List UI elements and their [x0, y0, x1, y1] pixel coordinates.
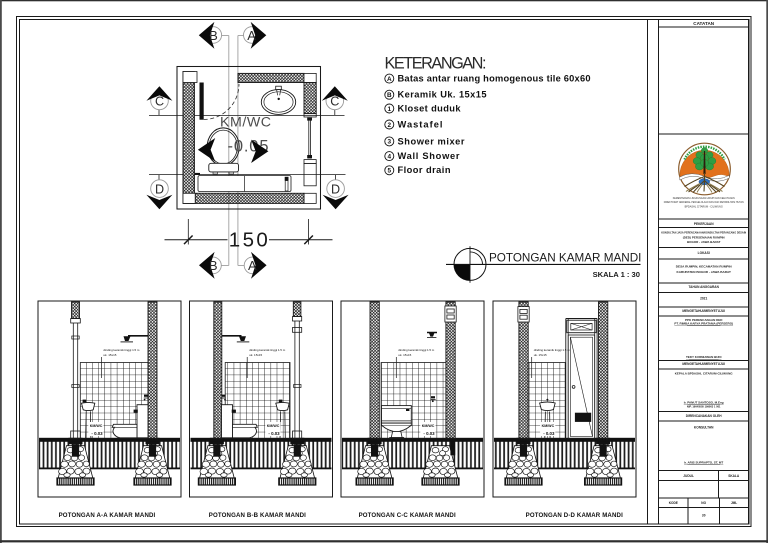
svg-text:5: 5	[388, 168, 392, 175]
svg-text:KONSULTAN JASA PERENCANAAN/KON: KONSULTAN JASA PERENCANAAN/KONSULTAN PER…	[661, 231, 746, 235]
svg-text:PT. RIMBA KARYA PRATAMA (PERSE: PT. RIMBA KARYA PRATAMA (PERSERO)	[674, 321, 733, 325]
svg-text:NIP. 19640505 199003 1 001: NIP. 19640505 199003 1 001	[687, 405, 721, 409]
svg-text:B: B	[209, 258, 218, 273]
svg-text:MENGETAHUI/MENYETUJUI: MENGETAHUI/MENYETUJUI	[682, 362, 725, 366]
svg-text:3: 3	[388, 139, 392, 146]
svg-text:150: 150	[229, 229, 268, 252]
svg-text:Ir. ARIS SUPRAPTO, ST, MT: Ir. ARIS SUPRAPTO, ST, MT	[684, 461, 723, 465]
svg-text:SKALA 1 : 30: SKALA 1 : 30	[593, 270, 640, 279]
svg-text:POTONGAN B-B KAMAR MANDI: POTONGAN B-B KAMAR MANDI	[209, 512, 306, 519]
svg-text:dinding keramik tinggi 1.5 m: dinding keramik tinggi 1.5 m	[398, 348, 435, 352]
svg-text:KEPALA BPDASHL CITARUM-CILIWUN: KEPALA BPDASHL CITARUM-CILIWUNG	[675, 372, 734, 376]
svg-text:1: 1	[388, 106, 392, 113]
svg-text:POTONGAN A-A KAMAR MANDI: POTONGAN A-A KAMAR MANDI	[59, 512, 156, 519]
svg-text:MENGETAHUI/MENYETUJUI: MENGETAHUI/MENYETUJUI	[682, 309, 725, 313]
svg-text:B: B	[387, 92, 392, 99]
svg-text:2021: 2021	[700, 297, 707, 301]
svg-text:uk. 15x15: uk. 15x15	[398, 353, 411, 357]
svg-text:DESA RUMPIN, KECAMATAN RUMPIN: DESA RUMPIN, KECAMATAN RUMPIN	[676, 265, 733, 269]
svg-text:D: D	[155, 182, 164, 196]
svg-text:A: A	[387, 76, 392, 83]
svg-text:KM/WC: KM/WC	[542, 424, 555, 428]
svg-text:- 0.03: - 0.03	[543, 431, 555, 436]
svg-text:Batas antar ruang homogenous t: Batas antar ruang homogenous tile 60x60	[398, 74, 591, 84]
svg-text:POTONGAN D-D KAMAR MANDI: POTONGAN D-D KAMAR MANDI	[526, 512, 623, 519]
svg-text:Keramik Uk. 15x15: Keramik Uk. 15x15	[398, 90, 487, 100]
svg-text:4: 4	[388, 153, 392, 160]
svg-text:TAHUN ANGGARAN: TAHUN ANGGARAN	[688, 285, 719, 289]
svg-text:BOGOR - JAWA BARAT: BOGOR - JAWA BARAT	[687, 240, 721, 244]
svg-text:TEDY KURNIAWAN BUDI: TEDY KURNIAWAN BUDI	[686, 355, 722, 359]
svg-text:A: A	[247, 28, 256, 43]
svg-text:KONSULTAN: KONSULTAN	[694, 426, 714, 430]
svg-text:Wall Shower: Wall Shower	[398, 151, 460, 161]
svg-text:Wastafel: Wastafel	[398, 119, 443, 129]
svg-text:dinding keramik tinggi 1.5 m: dinding keramik tinggi 1.5 m	[249, 348, 286, 352]
svg-text:Floor drain: Floor drain	[398, 165, 451, 175]
svg-text:JUDUL: JUDUL	[683, 474, 694, 478]
svg-text:- 0.03: - 0.03	[268, 431, 280, 436]
svg-text:KM/WC: KM/WC	[422, 424, 435, 428]
svg-text:30: 30	[702, 513, 706, 517]
svg-text:uk. 15x15: uk. 15x15	[249, 353, 262, 357]
svg-text:dinding keramik tinggi 1.5 m: dinding keramik tinggi 1.5 m	[103, 348, 139, 352]
svg-text:Shower mixer: Shower mixer	[398, 136, 465, 146]
svg-text:CATATAN: CATATAN	[693, 21, 715, 26]
svg-text:POTONGAN KAMAR MANDI: POTONGAN KAMAR MANDI	[489, 251, 641, 264]
svg-text:2: 2	[388, 122, 392, 129]
svg-text:KM/WC: KM/WC	[90, 424, 103, 428]
svg-text:Ir. PANUT SANTOSO, M.Eng: Ir. PANUT SANTOSO, M.Eng	[684, 401, 724, 405]
svg-text:PEKERJAAN: PEKERJAAN	[694, 222, 714, 226]
svg-text:DIRENCANAKAN OLEH: DIRENCANAKAN OLEH	[686, 414, 722, 418]
svg-text:KODE: KODE	[669, 501, 678, 505]
svg-text:KM/WC: KM/WC	[267, 424, 280, 428]
svg-text:DIREKTORAT JENDERAL PENGELOLAA: DIREKTORAT JENDERAL PENGELOLAAN DAS DAN …	[664, 201, 744, 204]
svg-text:dinding keramik tinggi 1.5 m: dinding keramik tinggi 1.5 m	[534, 348, 571, 352]
svg-text:KM/WC: KM/WC	[220, 115, 271, 131]
svg-text:BPDASHL CITARUM - CILIWUNG: BPDASHL CITARUM - CILIWUNG	[685, 205, 723, 208]
svg-text:D: D	[331, 182, 340, 196]
svg-text:B: B	[209, 28, 218, 43]
svg-text:SKALA: SKALA	[728, 474, 740, 478]
svg-text:JML: JML	[731, 501, 737, 505]
svg-text:uk. 15x15: uk. 15x15	[103, 353, 116, 357]
svg-text:(DED) PERSEMAIAN RUMPIN: (DED) PERSEMAIAN RUMPIN	[683, 235, 725, 239]
svg-text:- 0.03: - 0.03	[423, 431, 435, 436]
svg-text:C: C	[330, 95, 339, 109]
svg-text:- 0.03: - 0.03	[91, 431, 103, 436]
svg-text:NO: NO	[701, 501, 706, 505]
svg-text:C: C	[155, 95, 164, 109]
svg-text:KETERANGAN:: KETERANGAN:	[385, 55, 487, 73]
svg-text:KEMENTERIAN LINGKUNGAN HIDUP D: KEMENTERIAN LINGKUNGAN HIDUP DAN KEHUTAN…	[673, 196, 735, 200]
svg-text:KABUPATEN BOGOR - JAWA BARAT: KABUPATEN BOGOR - JAWA BARAT	[677, 270, 731, 274]
svg-text:A: A	[248, 258, 257, 273]
svg-text:uk. 15x15: uk. 15x15	[534, 353, 547, 357]
svg-text:Kloset duduk: Kloset duduk	[398, 103, 462, 113]
svg-text:LOKASI: LOKASI	[698, 251, 710, 255]
svg-text:POTONGAN C-C KAMAR MANDI: POTONGAN C-C KAMAR MANDI	[359, 512, 456, 519]
